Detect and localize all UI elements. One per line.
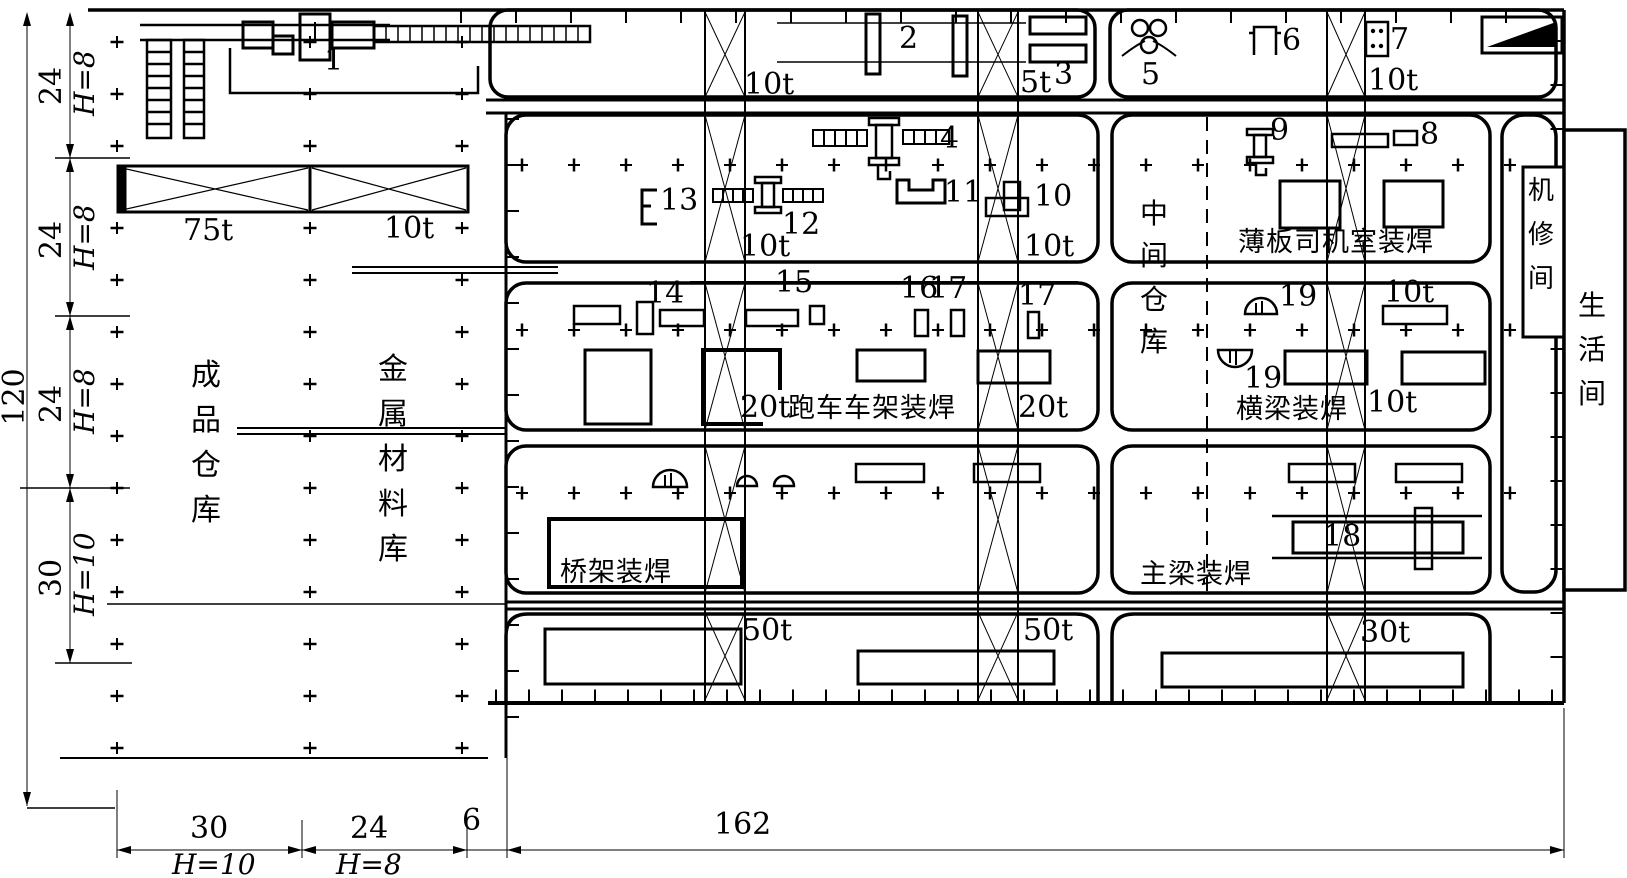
zone-intermediate-store-1: 中 <box>1140 200 1168 228</box>
zone-bridge-frame-welding: 桥架装焊 <box>560 559 672 586</box>
dim-h8-top: H=8 <box>71 56 99 116</box>
machine-3-plates-icon <box>1030 17 1086 62</box>
machine-4-label: 4 <box>940 124 959 154</box>
zone-main-girder-welding: 主梁装焊 <box>1140 561 1252 588</box>
zone-living-quarters-2: 活 <box>1578 336 1606 364</box>
zone-finished-goods-3: 仓 <box>191 451 221 481</box>
crane-10t-r1-label: 10t <box>744 70 794 100</box>
dim-h8-bottom: H=8 <box>336 851 402 878</box>
zone-machine-repair-2: 修 <box>1528 222 1554 248</box>
machine-5-rolls-icon <box>1122 20 1176 56</box>
zone-metal-materials-4: 料 <box>378 490 408 520</box>
transfer-rails <box>107 267 1078 604</box>
girder-bay-equipment <box>1272 464 1482 569</box>
machine-13-label: 13 <box>660 186 698 216</box>
crane-50t-a-label: 50t <box>742 616 792 646</box>
zone-intermediate-store-2: 间 <box>1140 242 1168 270</box>
dim-6-gap: 6 <box>462 806 481 836</box>
machine-15-label: 15 <box>775 268 813 298</box>
zone-intermediate-store-4: 库 <box>1140 328 1168 356</box>
machine-11-label: 11 <box>944 178 982 208</box>
machine-7-icon <box>1366 22 1388 56</box>
gantry-crane-75t-10t-icon <box>118 166 468 212</box>
crane-10t-r3b1-label: 10t <box>1384 278 1434 308</box>
storage-rack-icon <box>147 40 204 138</box>
zone-crossbeam-welding: 横梁装焊 <box>1236 396 1348 423</box>
crane-10t-r3b2-label: 10t <box>1367 388 1417 418</box>
dim-24-bottom: 24 <box>350 814 388 844</box>
machine-13-icon <box>642 190 657 224</box>
machine-11-icon <box>897 180 945 203</box>
zone-machine-repair-3: 间 <box>1528 266 1554 292</box>
zone-machine-repair-1: 机 <box>1528 178 1554 204</box>
dim-30-left: 30 <box>37 550 67 606</box>
dim-h10-bottom: H=10 <box>172 851 256 878</box>
machine-3-label: 3 <box>1054 60 1073 90</box>
crane-10t-r2a-label: 10t <box>740 232 790 262</box>
machine-18-label: 18 <box>1323 522 1361 552</box>
dim-h10-left: H=10 <box>71 540 99 616</box>
workshop-layout-plan: 1 2 3 4 5 6 7 8 9 10 11 12 13 14 15 16 1… <box>0 0 1627 878</box>
machine-1-rail-crane-icon <box>140 14 590 93</box>
dim-24-top: 24 <box>37 58 67 114</box>
machine-7-label: 7 <box>1390 25 1409 55</box>
zone-metal-materials-2: 属 <box>378 400 408 430</box>
zone-living-quarters-3: 间 <box>1578 380 1606 408</box>
dim-120-total: 120 <box>0 359 30 435</box>
machine-19b-label: 19 <box>1244 364 1282 394</box>
zone-metal-materials-5: 库 <box>378 535 408 565</box>
machine-5-label: 5 <box>1141 60 1160 90</box>
dim-h8-mid: H=8 <box>71 210 99 270</box>
machine-17b-label: 17 <box>1018 281 1056 311</box>
zone-trolley-frame-welding: 跑车车架装焊 <box>788 395 956 422</box>
crane-30t-label: 30t <box>1360 618 1410 648</box>
crane-20t-b-label: 20t <box>1018 393 1068 423</box>
machine-6-label: 6 <box>1282 26 1301 56</box>
machine-2-label: 2 <box>899 24 918 54</box>
machine-14-label: 14 <box>646 279 684 309</box>
zone-cab-welding: 薄板司机室装焊 <box>1238 229 1434 256</box>
crane-50t-b-label: 50t <box>1023 616 1073 646</box>
crane-10t-r1b-label: 10t <box>1368 66 1418 96</box>
dim-30-bottom: 30 <box>190 814 228 844</box>
crane-10t-yard-label: 10t <box>384 214 434 244</box>
dim-162-total: 162 <box>714 810 771 840</box>
north-wedge-icon <box>1482 17 1562 53</box>
zone-intermediate-store-3: 仓 <box>1140 286 1168 314</box>
zone-finished-goods-2: 品 <box>191 406 221 436</box>
crane-75t-label: 75t <box>183 216 233 246</box>
machine-8-icon <box>1332 131 1417 147</box>
cab-welding-tables <box>1280 181 1443 228</box>
machine-1-label: 1 <box>324 46 343 76</box>
zone-metal-materials-3: 材 <box>378 445 408 475</box>
machine-17-label: 17 <box>929 274 967 304</box>
machines-14-17-tables <box>574 302 1039 338</box>
bottom-band-platforms <box>545 629 1463 687</box>
crane-10t-r2b-label: 10t <box>1024 232 1074 262</box>
machine-6-icon <box>1249 27 1281 55</box>
dim-h8-low: H=8 <box>71 374 99 434</box>
machine-8-label: 8 <box>1420 120 1439 150</box>
zone-metal-materials-1: 金 <box>378 355 408 385</box>
machine-19-label: 19 <box>1279 282 1317 312</box>
crane-5t-label: 5t <box>1020 68 1051 98</box>
zone-living-quarters-1: 生 <box>1578 292 1606 320</box>
machine-10-label: 10 <box>1034 182 1072 212</box>
zone-finished-goods-1: 成 <box>191 361 221 391</box>
dim-24-low: 24 <box>37 376 67 432</box>
plan-line-drawing <box>0 0 1627 878</box>
zone-finished-goods-4: 库 <box>191 496 221 526</box>
crane-20t-a-label: 20t <box>740 393 790 423</box>
machine-9-label: 9 <box>1270 116 1289 146</box>
dim-24-mid: 24 <box>37 212 67 268</box>
